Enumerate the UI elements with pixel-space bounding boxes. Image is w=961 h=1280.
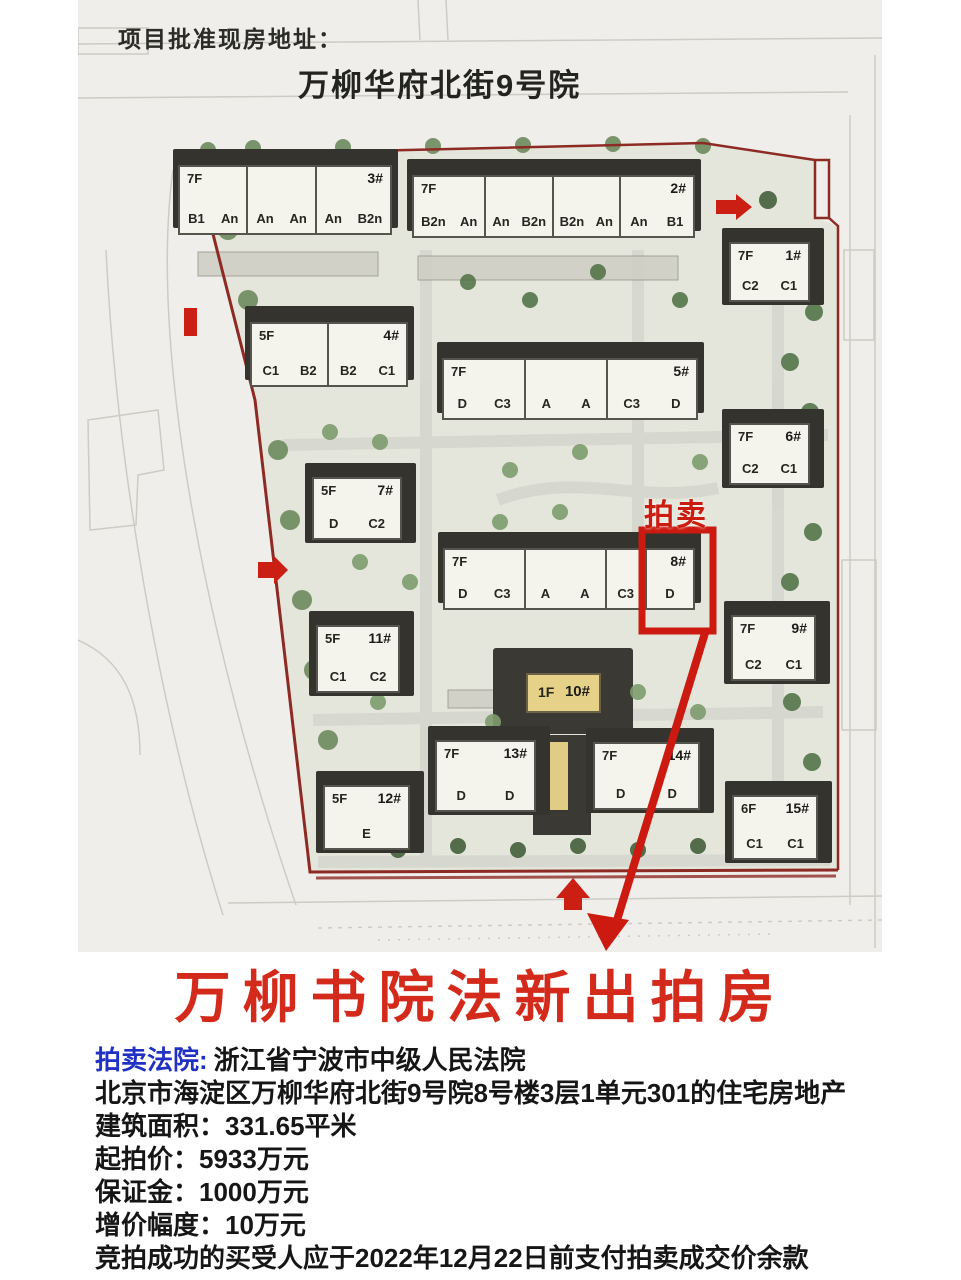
unit-labels: DD — [437, 788, 534, 803]
unit-labels: B2nAn — [554, 214, 619, 229]
building-9: 7F9#C2C1 — [731, 615, 816, 681]
building-id: 9# — [791, 620, 807, 636]
unit-labels: AnB2n — [486, 214, 552, 229]
building-id: 11# — [368, 630, 391, 646]
building-14: 7F14#DD — [593, 742, 700, 810]
court-value: 浙江省宁波市中级人民法院 — [214, 1045, 526, 1075]
court-line: 拍卖法院:浙江省宁波市中级人民法院 — [95, 1044, 885, 1077]
unit-labels: C2C1 — [731, 461, 808, 476]
unit-labels: E — [325, 826, 408, 841]
building-id: 14# — [668, 747, 691, 763]
building-floors: 7F — [421, 181, 436, 196]
page: 项目批准现房地址： 万柳华府北街9号院 7FB1AnAnAn3#AnB2n7FB… — [0, 0, 961, 1280]
increment-line: 增价幅度：10万元 — [95, 1209, 885, 1242]
auction-info: 拍卖法院:浙江省宁波市中级人民法院 北京市海淀区万柳华府北街9号院8号楼3层1单… — [95, 1044, 885, 1275]
building-label-box: 5F11#C1C2 — [316, 625, 400, 693]
building-7: 5F7#DC2 — [312, 477, 402, 540]
building-id: 2# — [670, 180, 686, 196]
deposit-line: 保证金：1000万元 — [95, 1176, 885, 1209]
court-label: 拍卖法院: — [95, 1045, 208, 1075]
building-floors: 7F — [444, 746, 459, 761]
building-floors: 5F — [325, 631, 340, 646]
building-15: 6F15#C1C1 — [732, 795, 818, 860]
unit-labels: AnAn — [248, 211, 314, 226]
site-plan-photo: 项目批准现房地址： 万柳华府北街9号院 7FB1AnAnAn3#AnB2n7FB… — [78, 0, 882, 952]
building-10: 1F10# — [526, 673, 601, 713]
unit-labels: AnB2n — [317, 211, 390, 226]
building-label-box: 7F9#C2C1 — [731, 615, 816, 681]
building-13: 7F13#DD — [435, 740, 536, 812]
unit-labels: DD — [595, 786, 698, 801]
building-id: 12# — [378, 790, 401, 806]
building-id: 7# — [377, 482, 393, 498]
building-label-box: 7FDC3AAC38#D — [443, 548, 695, 610]
building-label-box: 1F10# — [526, 673, 601, 713]
building-label-box: 7F6#C2C1 — [729, 423, 810, 485]
building-3: 7FB1AnAnAn3#AnB2n — [178, 165, 392, 235]
approved-address-label: 项目批准现房地址： — [118, 20, 343, 54]
unit-labels: C1C1 — [734, 836, 816, 851]
building-id: 4# — [383, 327, 399, 343]
building-label-box: 7FB2nAnAnB2nB2nAn2#AnB1 — [412, 175, 695, 238]
building-11: 5F11#C1C2 — [316, 625, 400, 693]
building-label-box: 7F1#C2C1 — [729, 242, 810, 302]
building-6: 7F6#C2C1 — [729, 423, 810, 485]
building-label-box: 7FDC3AA5#C3D — [442, 358, 698, 420]
building-floors: 7F — [187, 171, 202, 186]
unit-labels: C1C2 — [318, 669, 398, 684]
building-floors: 5F — [332, 791, 347, 806]
building-floors: 5F — [259, 328, 274, 343]
property-line: 北京市海淀区万柳华府北街9号院8号楼3层1单元301的住宅房地产 — [95, 1077, 885, 1110]
building-floors: 7F — [602, 748, 617, 763]
unit-labels: B2C1 — [329, 363, 406, 378]
unit-labels: C2C1 — [733, 657, 814, 672]
building-floors: 6F — [741, 801, 756, 816]
building-id: 1# — [785, 247, 801, 263]
start-price-line: 起拍价：5933万元 — [95, 1143, 885, 1176]
building-label-box: 7F14#DD — [593, 742, 700, 810]
unit-labels: DC3 — [445, 586, 524, 601]
building-floors: 7F — [740, 621, 755, 636]
unit-labels: AnB1 — [621, 214, 693, 229]
building-label-box: 5F12#E — [323, 785, 410, 850]
building-floors: 7F — [452, 554, 467, 569]
building-id: 6# — [785, 428, 801, 444]
unit-labels: DC3 — [444, 396, 524, 411]
building-id: 15# — [786, 800, 809, 816]
unit-labels: DC2 — [314, 516, 400, 531]
building-id: 8# — [670, 553, 686, 569]
payment-line: 竞拍成功的买受人应于2022年12月22日前支付拍卖成交价余款 — [95, 1242, 885, 1275]
buildings-layer: 7FB1AnAnAn3#AnB2n7FB2nAnAnB2nB2nAn2#AnB1… — [78, 0, 882, 952]
building-id: 3# — [367, 170, 383, 186]
building-floors: 7F — [738, 248, 753, 263]
building-4: 5FC1B24#B2C1 — [250, 322, 408, 387]
building-label-box: 7F13#DD — [435, 740, 536, 812]
building-label-box: 6F15#C1C1 — [732, 795, 818, 860]
building-floors: 7F — [451, 364, 466, 379]
unit-labels: B1An — [180, 211, 246, 226]
unit-labels: C3 — [607, 586, 645, 601]
unit-labels: C3D — [608, 396, 696, 411]
auction-tag: 拍卖 — [644, 490, 708, 534]
unit-labels: D — [647, 586, 693, 601]
building-floors: 7F — [738, 429, 753, 444]
building-label-box: 7FB1AnAnAn3#AnB2n — [178, 165, 392, 235]
building-id: 10# — [565, 683, 590, 700]
area-line: 建筑面积：331.65平米 — [95, 1110, 885, 1143]
unit-labels: C2C1 — [731, 278, 808, 293]
building-8: 7FDC3AAC38#D — [443, 548, 695, 610]
building-floors: 5F — [321, 483, 336, 498]
building-12: 5F12#E — [323, 785, 410, 850]
headline: 万柳书院法新出拍房 — [0, 953, 961, 1034]
building-id: 5# — [673, 363, 689, 379]
building-2: 7FB2nAnAnB2nB2nAn2#AnB1 — [412, 175, 695, 238]
unit-labels: C1B2 — [252, 363, 327, 378]
building-1: 7F1#C2C1 — [729, 242, 810, 302]
building-5: 7FDC3AA5#C3D — [442, 358, 698, 420]
unit-labels: B2nAn — [414, 214, 484, 229]
building-label-box: 5F7#DC2 — [312, 477, 402, 540]
building-label-box: 5FC1B24#B2C1 — [250, 322, 408, 387]
unit-labels: AA — [526, 396, 605, 411]
compound-name: 万柳华府北街9号院 — [298, 60, 581, 105]
building-floors: 1F — [538, 684, 554, 700]
unit-labels: AA — [526, 586, 605, 601]
building-id: 13# — [504, 745, 527, 761]
